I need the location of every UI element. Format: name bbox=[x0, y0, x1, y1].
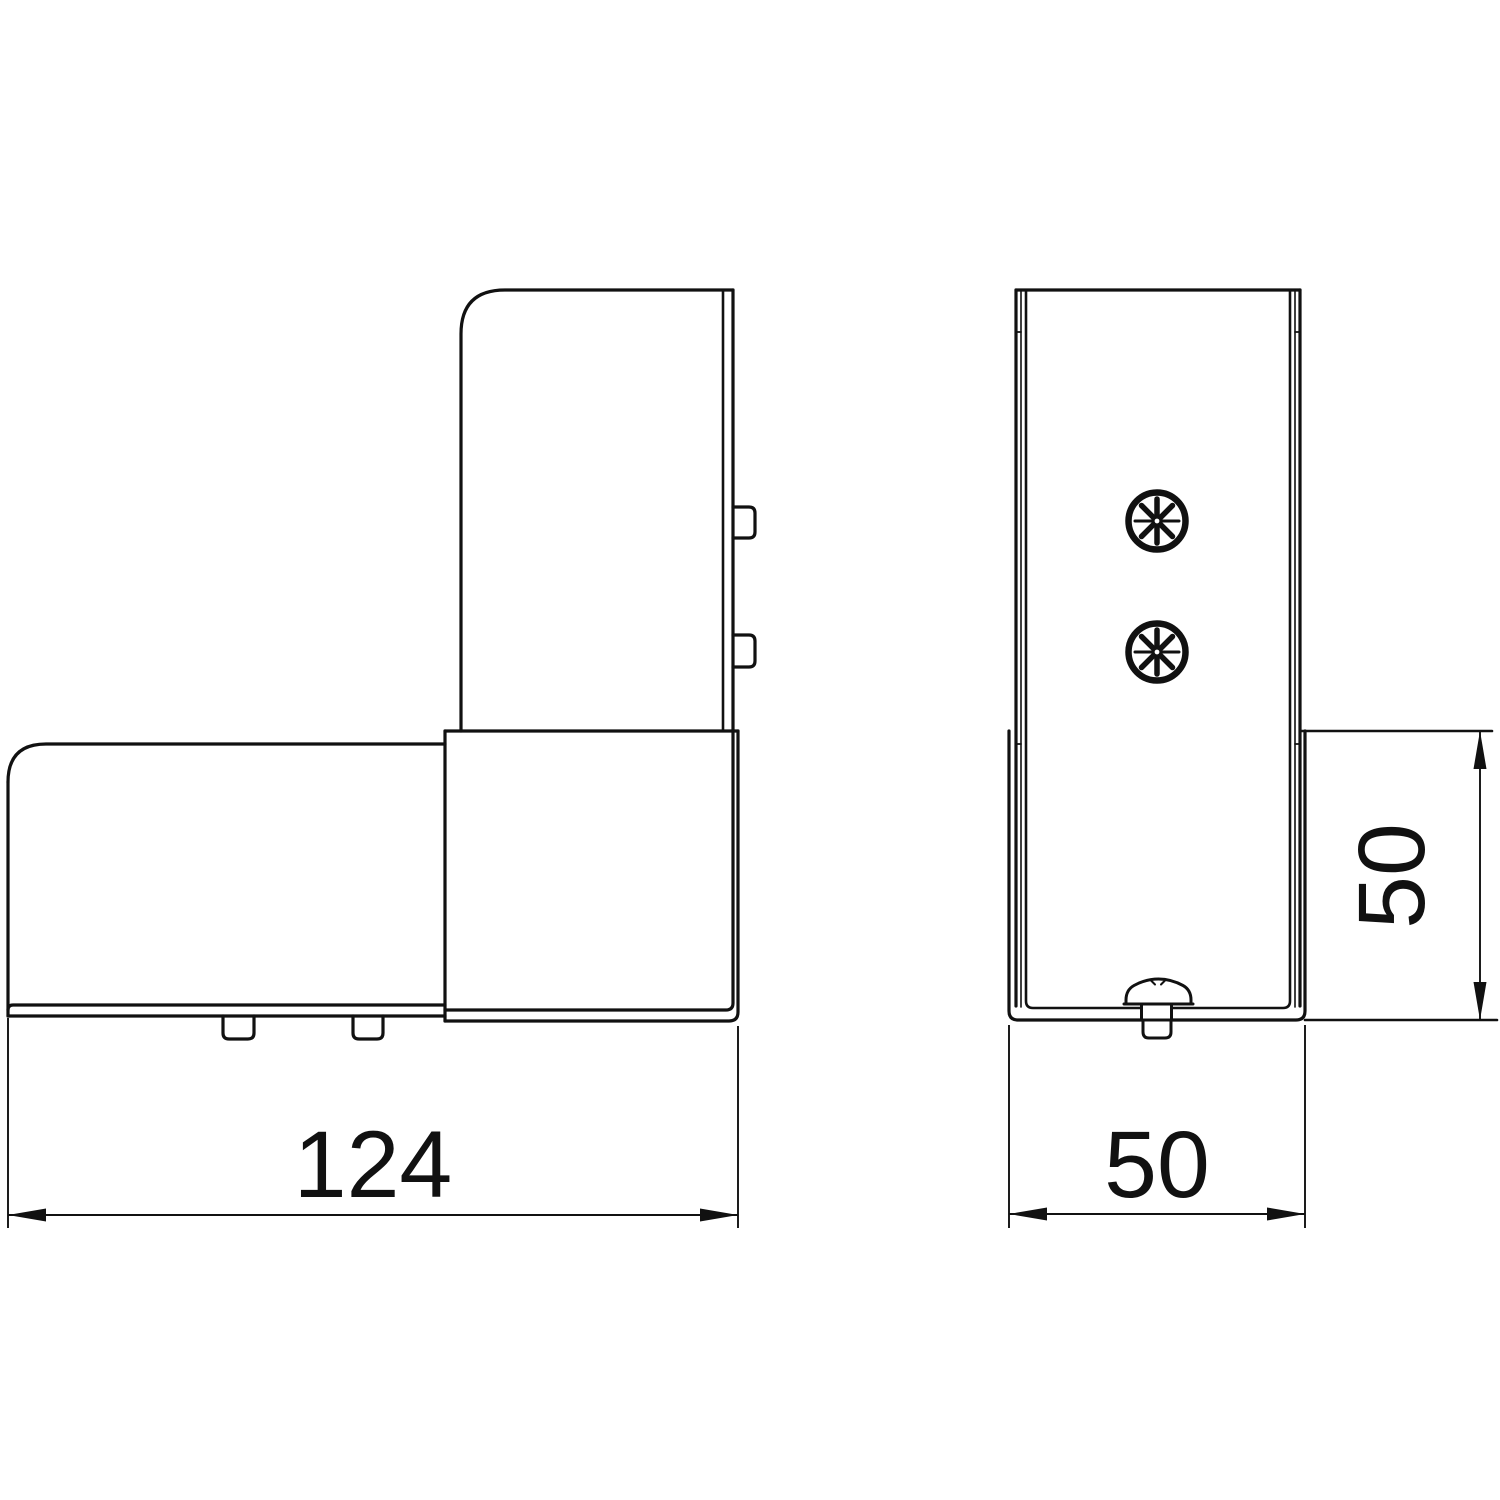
bottom-tab-right bbox=[353, 1016, 383, 1039]
dimension-124: 124 bbox=[8, 1018, 738, 1228]
technical-drawing-canvas: 124 50 50 bbox=[0, 0, 1500, 1500]
vertical-leg-right-line bbox=[445, 290, 733, 1010]
corner-joint-outer-edge bbox=[445, 731, 738, 1021]
channel-outline bbox=[1009, 731, 1305, 1020]
dim-124-label: 124 bbox=[294, 1112, 453, 1218]
side-tab-lower bbox=[733, 635, 755, 667]
pozidriv-screw-icon-upper bbox=[1129, 493, 1186, 550]
front-view bbox=[8, 290, 755, 1039]
dimension-50-width: 50 bbox=[1009, 1025, 1305, 1228]
dim-124-arrow-right bbox=[700, 1209, 738, 1222]
drawing-page: 124 50 50 bbox=[0, 0, 1500, 1500]
dim-50w-arrow-left bbox=[1009, 1208, 1047, 1221]
dimension-50-height: 50 bbox=[1339, 731, 1487, 1020]
bottom-tab-left bbox=[223, 1016, 254, 1039]
dim-50h-label: 50 bbox=[1339, 823, 1445, 929]
dim-50h-arrow-bottom bbox=[1474, 982, 1487, 1020]
dim-50h-arrow-top bbox=[1474, 731, 1487, 769]
dim-124-arrow-left bbox=[8, 1209, 46, 1222]
screw-tip bbox=[1143, 1020, 1171, 1038]
side-tab-upper bbox=[733, 507, 755, 538]
pozidriv-screw-icon-lower bbox=[1129, 624, 1186, 681]
screw-head bbox=[1126, 979, 1191, 1004]
horizontal-leg-top-edge bbox=[8, 744, 445, 782]
screw-shank-mask bbox=[1142, 1004, 1172, 1021]
dim-50w-arrow-right bbox=[1267, 1208, 1305, 1221]
vertical-leg-outline bbox=[461, 290, 733, 731]
dim-50w-label: 50 bbox=[1104, 1112, 1210, 1218]
horizontal-leg-bottom-inner bbox=[8, 1005, 445, 1010]
